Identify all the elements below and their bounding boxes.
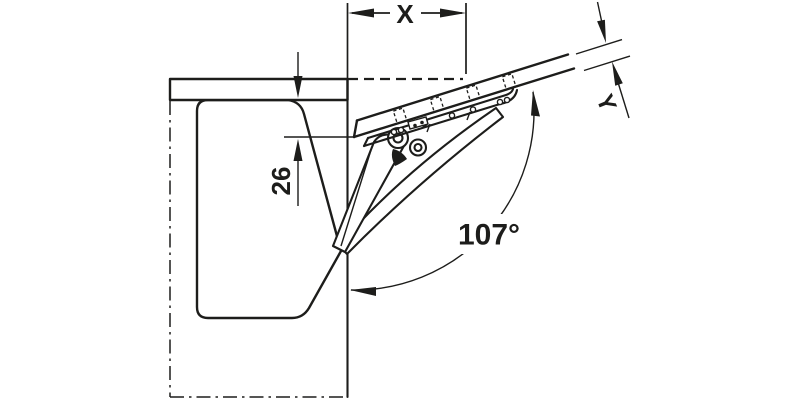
dim26-label: 26 [266,167,296,196]
y-arrow-top [597,20,606,43]
cabinet-interior-outline [197,100,341,318]
angle-arrow-bottom [350,287,376,296]
x-arrow-left [348,9,374,18]
x-arrow-right [440,9,466,18]
angle-label: 107° [458,219,520,252]
y-extension-bottom [584,56,630,70]
secondary-pivot [410,140,426,156]
dimension-x: X [348,0,467,79]
flap-fitting-installation-drawing: X 26 Y 107° [0,0,800,400]
angle-arrow-top [531,90,540,117]
x-dimension-label: X [396,0,414,29]
y-arrow-bottom [612,62,623,86]
y-leader-top [598,2,603,23]
dimension-y: Y [576,2,630,118]
y-extension-top [576,40,622,54]
drawing-canvas: X 26 Y 107° [0,0,800,400]
flap-panel [354,55,574,138]
y-dimension-label: Y [590,91,621,116]
pivot-shadow [392,149,407,166]
cabinet-top-panel [170,79,348,100]
